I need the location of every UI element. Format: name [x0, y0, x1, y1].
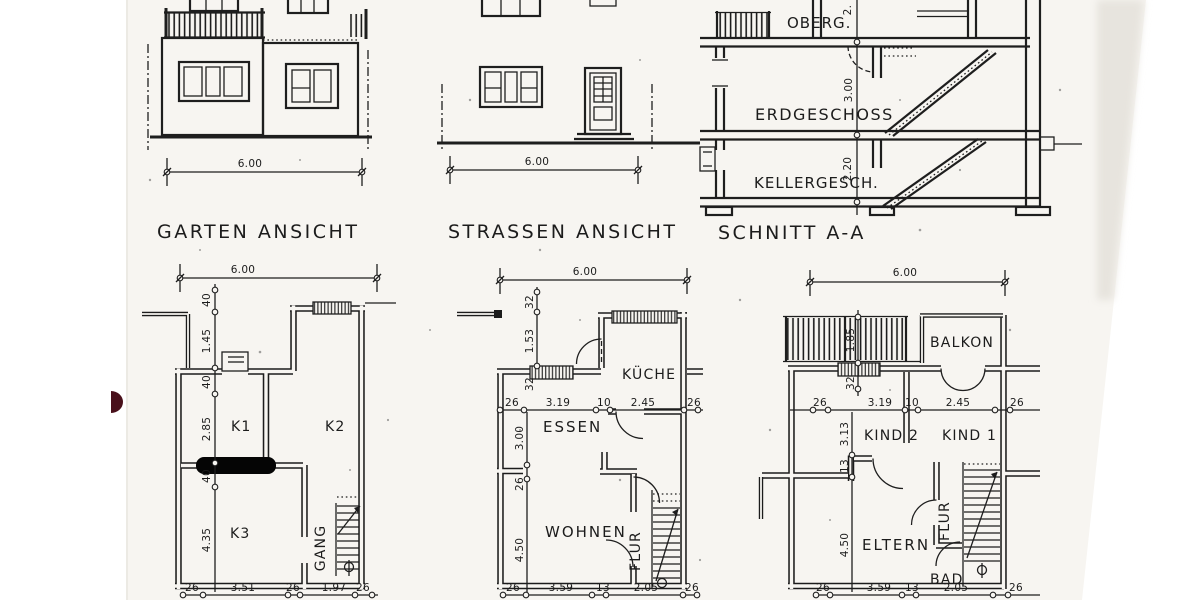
- erdg-lower-left-dim: 26: [514, 477, 526, 491]
- erdg-lower-left-dim: 4.50: [514, 538, 526, 563]
- erdgeschoss-label: ERDGESCHOSS: [755, 105, 894, 124]
- erdg-mid-dim: 26: [687, 397, 701, 409]
- erdg-mid-dim: 3.19: [546, 397, 571, 409]
- blueprint-svg: 6.00 GARTEN ANSICHT: [0, 0, 1200, 600]
- erdg-bottom-dim: 3.59: [549, 582, 574, 594]
- strassen-title: STRASSEN ANSICHT: [448, 221, 678, 243]
- kueche-window: [612, 311, 677, 323]
- obergeschoss-width-dim: 6.00: [893, 267, 918, 279]
- og-upper-left-dim: 32: [845, 376, 857, 390]
- og-mid-dim: 26: [813, 397, 827, 409]
- room-label-kind1: KIND 1: [942, 428, 997, 444]
- og-mid-dim: 2.45: [946, 397, 971, 409]
- strassen-width-dim: 6.00: [525, 156, 550, 168]
- keller-bottom-dim: 3.51: [231, 582, 256, 594]
- erdgeschoss-width-dim: 6.00: [573, 266, 598, 278]
- og-bottom-dim: 13: [905, 582, 919, 594]
- room-label-balkon: BALKON: [930, 335, 994, 351]
- garten-title: GARTEN ANSICHT: [157, 221, 359, 243]
- oberg-label: OBERG.: [787, 14, 851, 32]
- keller-bottom-dim: 26: [286, 582, 300, 594]
- erdgeschoss-height-dim: 3.00: [843, 78, 855, 103]
- schnitt-title: SCHNITT A-A: [718, 222, 866, 244]
- erdg-bottom-dim: 2.05: [634, 582, 659, 594]
- erdg-upper-left-dim: 1.53: [524, 329, 536, 354]
- keller-left-dim: 4.35: [201, 528, 213, 553]
- room-label-kueche: KÜCHE: [622, 365, 676, 383]
- keller-bottom-dim: 1.97: [322, 582, 347, 594]
- og-mid-dim: 3.19: [868, 397, 893, 409]
- og-bottom-dim: 3.59: [867, 582, 892, 594]
- keller-left-dim: 40: [201, 293, 213, 307]
- room-label-k3: K3: [230, 526, 251, 542]
- keller-bottom-dim: 26: [356, 582, 370, 594]
- kellergeschoss-label: KELLERGESCH.: [754, 174, 879, 192]
- room-label-k2: K2: [325, 419, 346, 435]
- bay-window: [313, 302, 351, 314]
- og-lower-left-dim: 13: [839, 459, 851, 473]
- room-label-kind2: KIND 2: [864, 428, 919, 444]
- garten-width-dim: 6.00: [238, 158, 263, 170]
- red-punch-mark: [111, 391, 123, 413]
- room-label-wohnen: WOHNEN: [545, 523, 627, 541]
- left-dimension-chain: 40 1.45 40 2.85 40 4.35: [201, 284, 218, 592]
- og-upper-left-dim: 1.85: [845, 328, 857, 353]
- keller-left-dim: 2.85: [201, 417, 213, 442]
- erdg-mid-dim: 26: [505, 397, 519, 409]
- section-balcony-railing: [715, 11, 771, 39]
- room-label-flur-eg: FLUR: [628, 531, 644, 571]
- scan-shadow-edge: [1097, 0, 1144, 300]
- keller-width-dim: 6.00: [231, 264, 256, 276]
- og-bottom-dim: 26: [1009, 582, 1023, 594]
- erdg-upper-left-dim: 32: [524, 377, 536, 391]
- keller-left-dim: 1.45: [201, 329, 213, 354]
- og-lower-left-dim: 4.50: [839, 533, 851, 558]
- room-label-essen: ESSEN: [543, 418, 602, 436]
- og-bottom-dim: 26: [816, 582, 830, 594]
- og-lower-left-dim: 3.13: [839, 422, 851, 447]
- erdg-upper-left-dim: 32: [524, 295, 536, 309]
- room-label-eltern: ELTERN: [862, 536, 930, 554]
- og-mid-dim: 10: [905, 397, 919, 409]
- keller-bottom-dim: 26: [185, 582, 199, 594]
- keller-left-dim: 40: [201, 469, 213, 483]
- keller-left-dim: 40: [201, 375, 213, 389]
- erdg-mid-dim: 2.45: [631, 397, 656, 409]
- og-mid-dim: 26: [1010, 397, 1024, 409]
- erdg-bottom-dim: 26: [506, 582, 520, 594]
- room-label-gang: GANG: [313, 525, 329, 572]
- room-label-bad: BAD: [930, 572, 964, 588]
- erdg-mid-dim: 10: [597, 397, 611, 409]
- room-label-k1: K1: [231, 419, 252, 435]
- room-label-flur-og: FLUR: [937, 501, 953, 541]
- erdg-bottom-dim: 13: [596, 582, 610, 594]
- erdg-bottom-dim: 26: [685, 582, 699, 594]
- scanned-architectural-drawing: 6.00 GARTEN ANSICHT: [0, 0, 1200, 600]
